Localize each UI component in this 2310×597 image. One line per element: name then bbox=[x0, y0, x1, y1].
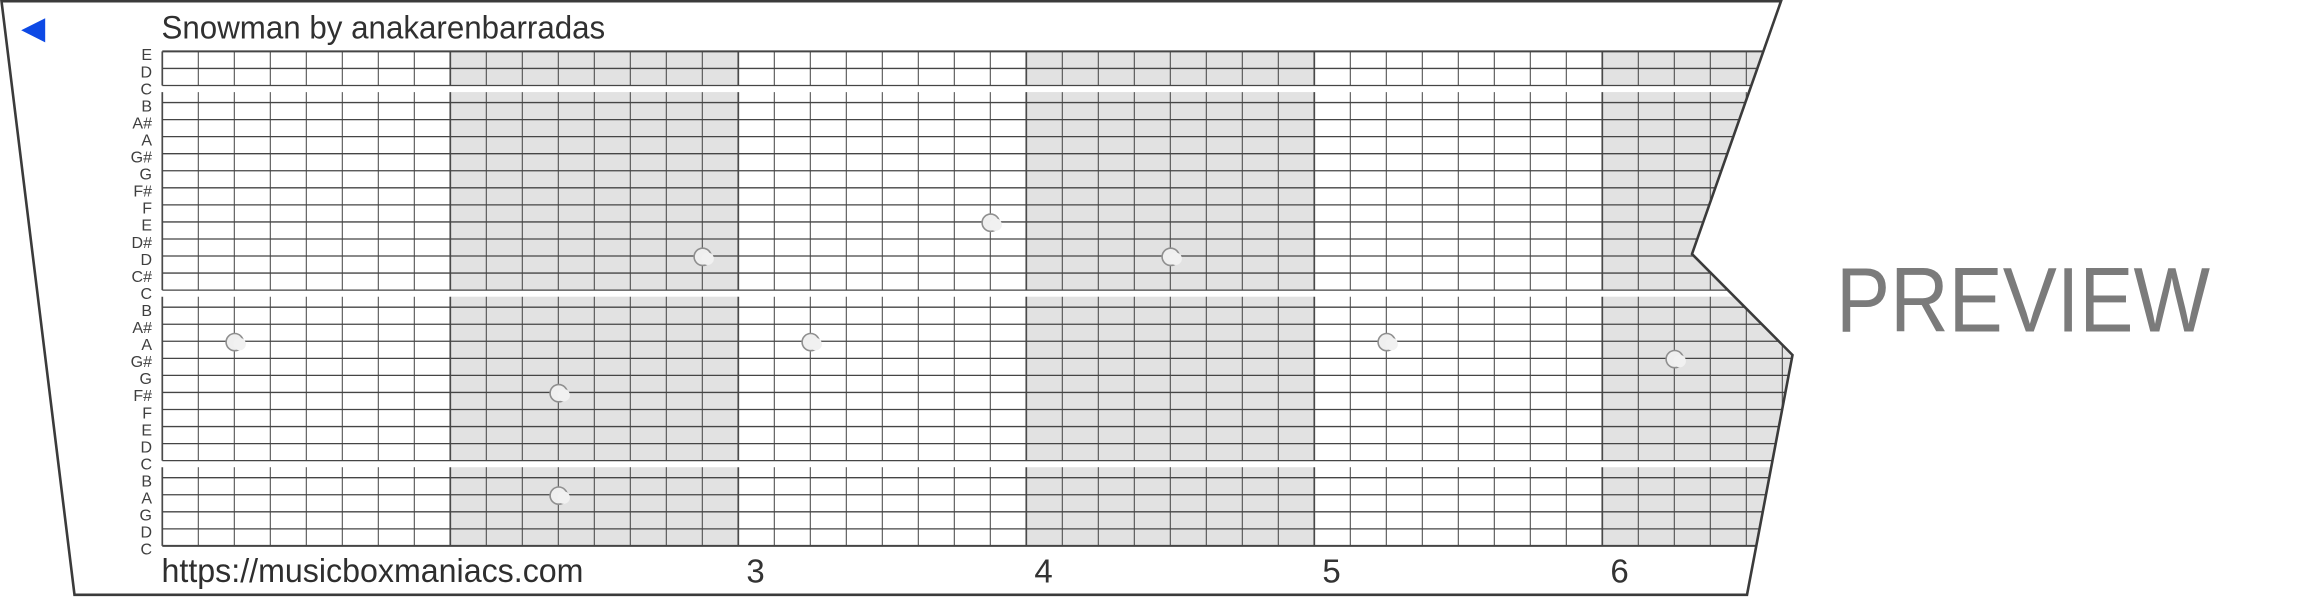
svg-text:D: D bbox=[140, 439, 152, 456]
svg-text:E: E bbox=[141, 422, 152, 439]
svg-text:PREVIEW: PREVIEW bbox=[1836, 250, 2210, 352]
svg-text:C#: C# bbox=[132, 269, 153, 286]
svg-text:D: D bbox=[140, 252, 152, 269]
svg-text:A: A bbox=[141, 337, 152, 354]
svg-text:A#: A# bbox=[132, 115, 152, 132]
svg-text:G: G bbox=[140, 508, 152, 525]
svg-text:4: 4 bbox=[1034, 552, 1052, 589]
svg-text:F#: F# bbox=[133, 184, 152, 201]
svg-text:C: C bbox=[140, 542, 152, 559]
svg-text:D: D bbox=[140, 64, 152, 81]
svg-text:B: B bbox=[141, 98, 152, 115]
svg-text:F#: F# bbox=[133, 388, 152, 405]
svg-text:5: 5 bbox=[1322, 552, 1340, 589]
svg-text:C: C bbox=[140, 81, 152, 98]
svg-text:E: E bbox=[141, 47, 152, 64]
svg-text:D: D bbox=[140, 525, 152, 542]
svg-text:3: 3 bbox=[746, 552, 764, 589]
svg-text:B: B bbox=[141, 303, 152, 320]
svg-text:A#: A# bbox=[132, 320, 152, 337]
svg-text:Snowman by anakarenbarradas: Snowman by anakarenbarradas bbox=[162, 10, 606, 46]
svg-text:B: B bbox=[141, 474, 152, 491]
svg-text:E: E bbox=[141, 218, 152, 235]
svg-text:F: F bbox=[142, 201, 152, 218]
svg-text:https://musicboxmaniacs.com: https://musicboxmaniacs.com bbox=[162, 553, 584, 590]
svg-text:A: A bbox=[141, 491, 152, 508]
svg-text:G#: G# bbox=[131, 354, 152, 371]
svg-text:D#: D# bbox=[132, 235, 153, 252]
svg-text:G#: G# bbox=[131, 150, 152, 167]
svg-text:F: F bbox=[142, 405, 152, 422]
svg-text:C: C bbox=[140, 286, 152, 303]
svg-text:C: C bbox=[140, 456, 152, 473]
svg-text:G: G bbox=[140, 371, 152, 388]
svg-text:A: A bbox=[141, 133, 152, 150]
svg-text:G: G bbox=[140, 167, 152, 184]
svg-text:6: 6 bbox=[1610, 552, 1628, 589]
